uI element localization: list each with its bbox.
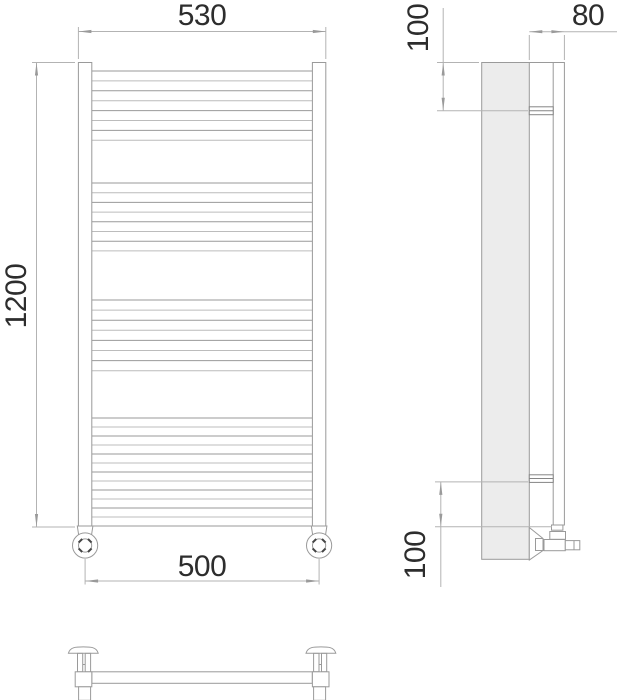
dimension-530: 530 [78,0,325,59]
dim-label-530: 530 [178,0,227,32]
arrowhead [306,579,319,582]
arrowhead [78,30,91,33]
bracket-stem [85,653,90,671]
bracket-flange [68,647,98,653]
dim-label-80: 80 [572,0,604,32]
technical-drawing: 530 1200 500 [0,0,620,700]
dimension-1200: 1200 [0,63,75,528]
dim-label-500: 500 [178,550,227,583]
post-section [75,672,92,687]
left-valve-foot [73,526,98,558]
wall-bracket-top [529,107,553,115]
drawing-canvas: 530 1200 500 [0,0,620,700]
arrowhead [551,30,564,33]
right-valve-foot [307,526,332,558]
valve-body [544,540,565,551]
dim-label-1200: 1200 [0,264,33,329]
left-post [78,63,91,527]
arrowhead [85,579,98,582]
wall-bracket-bottom [529,475,553,483]
side-valve [529,525,580,560]
dim-label-100-top: 100 [402,4,435,53]
crossbar [92,672,312,684]
rung-lines [92,71,312,526]
arrowhead [442,98,445,111]
arrowhead [35,63,38,76]
valve-fitting [552,525,563,530]
side-panel [482,63,530,560]
side-vertical-tube [553,63,564,526]
arrowhead [529,30,542,33]
arrowhead [313,30,326,33]
valve-knob [536,539,544,551]
bracket-stem [78,653,83,671]
arrowhead [439,514,442,527]
dimension-80: 80 [529,0,617,60]
side-view [482,63,580,561]
valve-spout [565,541,580,550]
valve-nut [550,532,566,540]
post-stub [79,687,91,700]
arrowhead [35,514,38,527]
right-post [312,63,325,527]
arrowhead [442,63,445,76]
dim-label-100-bottom: 100 [399,531,432,580]
arrowhead [439,482,442,495]
dimension-500: 500 [85,550,319,585]
bottom-view [68,647,335,700]
front-view [73,63,332,559]
